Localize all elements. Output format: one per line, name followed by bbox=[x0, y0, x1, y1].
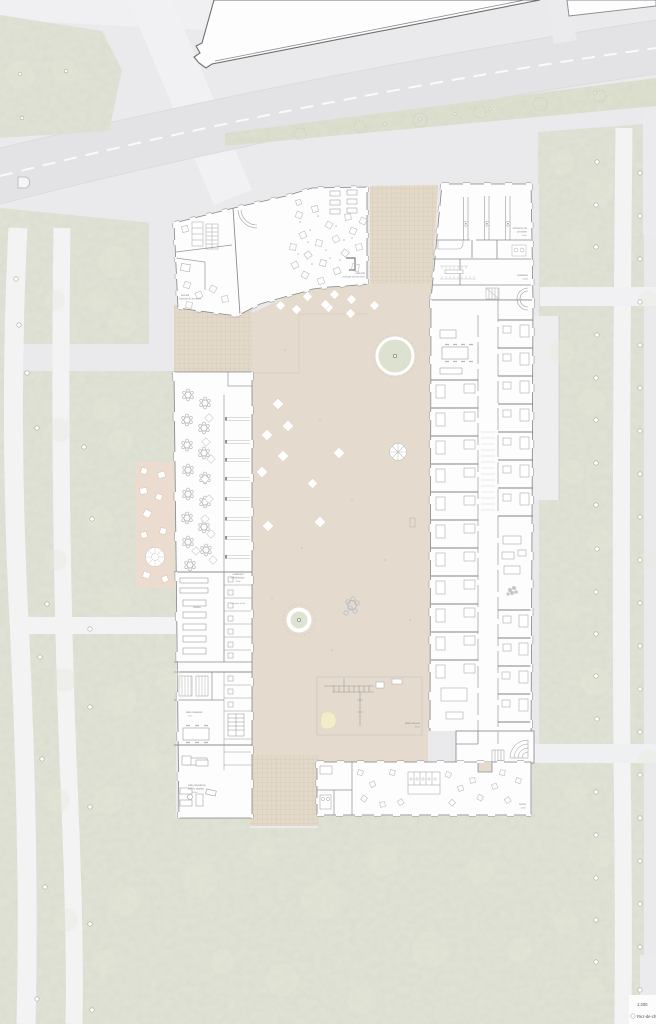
svg-text:buanderie: buanderie bbox=[517, 274, 528, 277]
svg-text:pour le quartier: pour le quartier bbox=[188, 787, 204, 790]
svg-text:echange de jeunesse: echange de jeunesse bbox=[342, 276, 365, 279]
svg-text:accueil: accueil bbox=[181, 293, 189, 297]
svg-text:creche: creche bbox=[519, 803, 527, 806]
svg-text:140m: 140m bbox=[192, 792, 198, 794]
svg-text:150m: 150m bbox=[522, 235, 528, 237]
svg-text:cuisine: cuisine bbox=[193, 606, 201, 609]
svg-text:Rez-de-ch: Rez-de-ch bbox=[637, 1014, 656, 1019]
svg-text:cafe-bar: cafe-bar bbox=[355, 271, 365, 275]
svg-text:200m: 200m bbox=[235, 581, 241, 583]
svg-text:salle restaurant: salle restaurant bbox=[186, 711, 203, 714]
svg-text:140m: 140m bbox=[521, 807, 527, 809]
svg-text:bibliotheque: bibliotheque bbox=[232, 576, 246, 579]
svg-text:75m: 75m bbox=[188, 715, 192, 717]
svg-text:chambre froide: chambre froide bbox=[231, 602, 246, 605]
svg-text:150m: 150m bbox=[415, 726, 421, 728]
svg-text:proximite: proximite bbox=[517, 231, 527, 234]
svg-text:auberge de jeunesse: auberge de jeunesse bbox=[179, 297, 202, 300]
svg-text:plaine de jeux: plaine de jeux bbox=[405, 722, 421, 725]
svg-text:depot: depot bbox=[523, 278, 529, 281]
svg-text:1:200: 1:200 bbox=[637, 1002, 648, 1007]
